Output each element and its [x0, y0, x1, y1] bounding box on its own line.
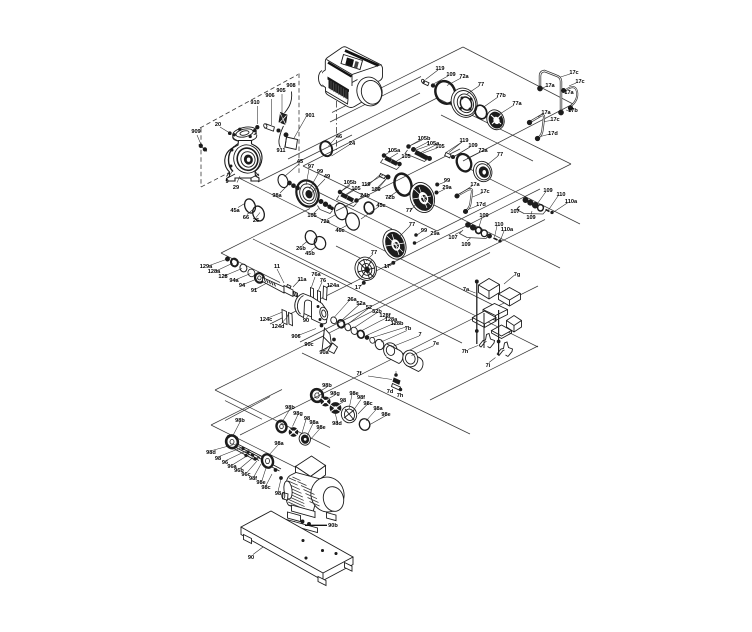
- svg-text:29a: 29a: [442, 185, 452, 191]
- svg-text:7h: 7h: [397, 393, 404, 399]
- svg-text:98d: 98d: [332, 421, 342, 427]
- svg-text:29: 29: [233, 185, 239, 191]
- svg-text:7g: 7g: [514, 272, 521, 278]
- svg-text:72b: 72b: [385, 195, 395, 201]
- svg-text:77: 77: [409, 222, 415, 228]
- svg-text:17a: 17a: [545, 83, 555, 89]
- svg-text:109: 109: [543, 188, 552, 194]
- svg-text:98g: 98g: [293, 411, 303, 417]
- svg-text:98c: 98c: [261, 485, 270, 491]
- svg-text:45: 45: [297, 159, 303, 165]
- svg-text:72a: 72a: [320, 219, 330, 225]
- svg-text:77b: 77b: [496, 93, 506, 99]
- svg-text:128b: 128b: [391, 321, 404, 327]
- svg-text:46c: 46c: [335, 228, 344, 234]
- svg-text:107: 107: [510, 209, 519, 215]
- svg-text:119: 119: [361, 182, 370, 188]
- svg-text:17a: 17a: [470, 182, 480, 188]
- svg-text:119: 119: [459, 138, 468, 144]
- svg-text:124d: 124d: [272, 324, 285, 330]
- svg-text:105: 105: [351, 186, 360, 192]
- svg-text:105a: 105a: [388, 148, 401, 154]
- svg-text:7h: 7h: [462, 349, 469, 355]
- svg-text:109: 109: [446, 72, 455, 78]
- svg-text:17d: 17d: [548, 131, 558, 137]
- svg-text:17c: 17c: [575, 79, 584, 85]
- svg-text:98g: 98g: [330, 391, 340, 397]
- svg-text:91: 91: [251, 288, 257, 294]
- svg-text:17: 17: [355, 285, 361, 291]
- svg-text:906: 906: [291, 334, 300, 340]
- svg-text:90: 90: [303, 318, 309, 324]
- svg-text:7e: 7e: [433, 341, 439, 347]
- svg-text:99: 99: [444, 178, 450, 184]
- svg-text:17d: 17d: [476, 202, 486, 208]
- svg-text:20: 20: [215, 122, 221, 128]
- svg-text:17c: 17c: [550, 117, 559, 123]
- svg-text:98a: 98a: [274, 441, 284, 447]
- svg-text:7d: 7d: [387, 389, 394, 395]
- svg-text:17a: 17a: [564, 90, 574, 96]
- svg-text:910: 910: [250, 100, 259, 106]
- svg-text:17: 17: [384, 264, 390, 270]
- svg-text:98: 98: [215, 456, 221, 462]
- svg-text:110a: 110a: [565, 199, 578, 205]
- svg-text:906: 906: [265, 93, 274, 99]
- svg-text:98b: 98b: [235, 418, 245, 424]
- svg-text:45a: 45a: [230, 208, 240, 214]
- svg-text:105: 105: [401, 154, 410, 160]
- svg-text:90a: 90a: [319, 350, 329, 356]
- svg-text:109: 109: [371, 187, 380, 193]
- svg-text:110a: 110a: [501, 227, 514, 233]
- svg-text:98b: 98b: [322, 383, 332, 389]
- svg-text:905: 905: [276, 88, 285, 94]
- svg-text:99: 99: [317, 169, 323, 175]
- svg-text:911: 911: [276, 148, 285, 154]
- svg-text:11a: 11a: [297, 277, 307, 283]
- svg-text:98c: 98c: [363, 401, 372, 407]
- svg-text:98: 98: [275, 491, 281, 497]
- svg-text:90c: 90c: [304, 342, 313, 348]
- svg-text:24b: 24b: [360, 193, 370, 199]
- svg-text:90: 90: [248, 555, 254, 561]
- svg-text:76: 76: [320, 278, 326, 284]
- svg-text:98a: 98a: [272, 193, 282, 199]
- svg-text:94: 94: [239, 283, 246, 289]
- svg-text:109: 109: [468, 143, 477, 149]
- svg-text:11: 11: [274, 264, 280, 270]
- svg-text:99: 99: [421, 228, 427, 234]
- svg-text:17c: 17c: [569, 70, 578, 76]
- svg-text:908: 908: [286, 83, 295, 89]
- svg-text:52: 52: [366, 305, 372, 311]
- svg-text:128: 128: [218, 274, 227, 280]
- svg-text:26: 26: [253, 218, 259, 224]
- svg-text:98: 98: [340, 398, 346, 404]
- svg-text:98e: 98e: [381, 412, 390, 418]
- svg-text:72a: 72a: [478, 148, 488, 154]
- svg-text:90b: 90b: [328, 523, 338, 529]
- svg-text:7: 7: [418, 332, 421, 338]
- svg-text:45b: 45b: [305, 251, 315, 257]
- svg-text:97: 97: [308, 164, 314, 170]
- svg-text:124a: 124a: [327, 283, 340, 289]
- svg-text:7f: 7f: [357, 371, 362, 377]
- svg-text:109: 109: [479, 213, 488, 219]
- svg-text:107: 107: [448, 235, 457, 241]
- svg-text:119: 119: [435, 66, 444, 72]
- svg-text:17a: 17a: [541, 110, 551, 116]
- svg-text:901: 901: [305, 113, 314, 119]
- svg-text:77a: 77a: [512, 101, 522, 107]
- svg-text:77: 77: [497, 152, 503, 158]
- svg-text:98e: 98e: [316, 425, 325, 431]
- svg-text:77: 77: [478, 82, 484, 88]
- svg-text:29a: 29a: [430, 231, 440, 237]
- svg-text:7b: 7b: [405, 326, 412, 332]
- svg-text:7a: 7a: [463, 287, 470, 293]
- svg-text:109: 109: [526, 215, 535, 221]
- svg-text:77: 77: [406, 208, 412, 214]
- svg-text:105: 105: [307, 213, 316, 219]
- svg-text:110: 110: [556, 192, 565, 198]
- svg-text:77: 77: [371, 250, 377, 256]
- svg-text:17c: 17c: [480, 189, 489, 195]
- svg-text:124c: 124c: [260, 317, 272, 323]
- svg-text:7i: 7i: [486, 363, 491, 369]
- svg-text:46: 46: [336, 134, 342, 140]
- svg-text:45c: 45c: [376, 203, 385, 209]
- svg-text:24: 24: [349, 141, 356, 147]
- svg-text:9: 9: [225, 179, 228, 185]
- svg-text:72a: 72a: [459, 74, 469, 80]
- svg-text:49: 49: [324, 174, 330, 180]
- svg-text:109: 109: [461, 242, 470, 248]
- svg-text:105: 105: [435, 144, 444, 150]
- svg-text:66: 66: [243, 215, 249, 221]
- svg-text:909: 909: [191, 129, 200, 135]
- svg-text:17b: 17b: [568, 108, 578, 114]
